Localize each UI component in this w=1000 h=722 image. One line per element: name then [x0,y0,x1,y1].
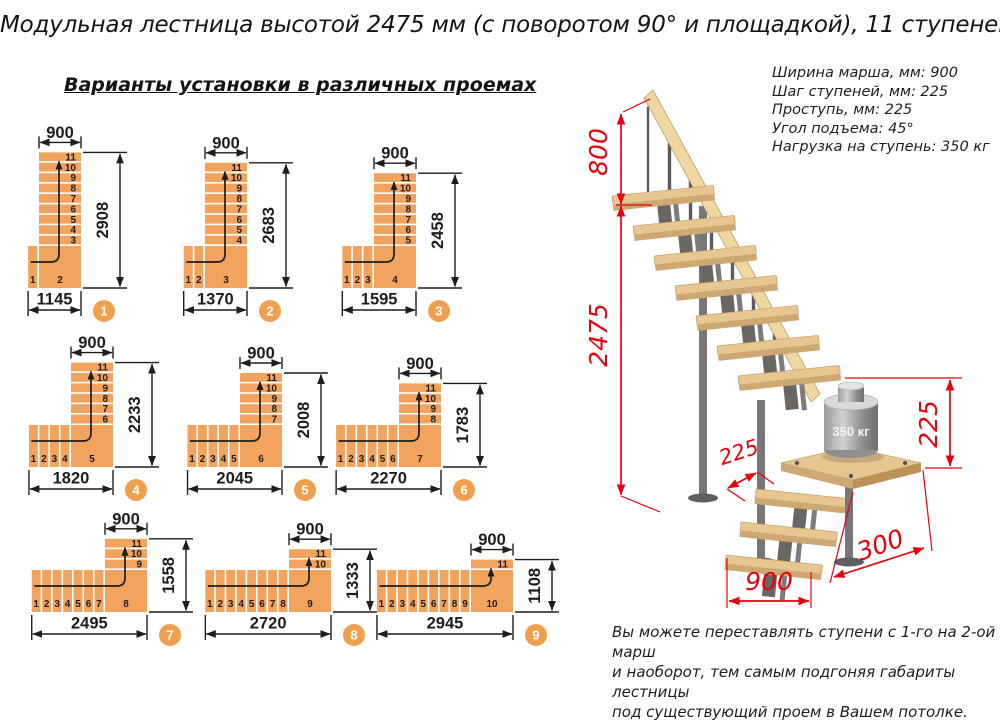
variant-badge-number: 9 [532,628,539,643]
bottom-step-number: 4 [369,454,375,465]
stair-diagram-2: 1110987654123900268313702 [184,134,293,322]
flight-step-number: 7 [236,204,242,215]
corner-step-number: 8 [123,599,129,610]
variant-badge-number: 2 [266,304,273,319]
stair-diagram-5: 1110987123456900200820455 [188,345,328,502]
flight-step-number: 11 [425,383,436,394]
plan-diagrams: 1110987654312900290811451111098765412390… [28,124,559,646]
bottom-step-number: 5 [231,454,237,465]
bottom-step-number: 5 [420,599,426,610]
bottom-step-number: 1 [185,275,191,286]
flight-step-number: 8 [430,415,436,426]
flight-step-number: 10 [400,184,412,195]
flight-step-number: 7 [271,415,277,426]
corner-step-number: 7 [417,454,423,465]
stair-diagram-1: 1110987654312900290811451 [28,124,127,322]
flight-step-number: 6 [70,204,76,215]
flight-step-number: 7 [70,194,76,205]
opening-width-label: 1145 [37,291,73,309]
bottom-step-number: 7 [270,599,276,610]
bottom-step-number: 3 [399,599,405,610]
bottom-step-number: 1 [31,454,37,465]
variant-badge-number: 1 [100,304,107,319]
bottom-step-number: 4 [410,599,416,610]
flight-width-label: 900 [112,510,140,528]
label-total-height: 2475 [584,303,613,367]
opening-width-label: 2720 [250,615,287,633]
flight-step-number: 6 [102,415,108,426]
bottom-step-number: 2 [217,599,223,610]
opening-width-label: 2045 [216,470,253,488]
stair-diagram-6: 1110981234567900178322706 [336,355,487,501]
corner-step-number: 9 [307,599,313,610]
flight-step-number: 11 [231,163,242,174]
bottom-step-number: 4 [221,454,227,465]
flight-step-number: 8 [271,404,277,415]
bottom-step-number: 1 [207,599,213,610]
bottom-step-number: 1 [379,599,385,610]
bottom-step-number: 1 [338,454,344,465]
corner-step-number: 4 [392,275,398,286]
flight-step-number: 11 [315,549,326,560]
flight-step-number: 9 [136,560,142,571]
bottom-step-number: 2 [41,454,47,465]
flight-step-number: 10 [97,373,109,384]
variant-badge-number: 4 [132,483,140,498]
flight-step-number: 8 [102,394,108,405]
bottom-step-number: 5 [75,599,81,610]
opening-width-label: 2270 [370,470,407,488]
flight-width-label: 900 [296,521,324,539]
opening-height-label: 2683 [260,207,278,244]
bottom-step-number: 6 [259,599,265,610]
variant-badge-number: 8 [350,628,357,643]
bottom-step-number: 1 [33,599,39,610]
corner-step-number: 5 [89,454,95,465]
label-march-width: 900 [745,567,793,596]
opening-width-label: 2495 [71,615,108,633]
bottom-step-number: 6 [390,454,396,465]
corner-step-number: 6 [258,454,264,465]
dim-225-rise [728,473,756,488]
opening-width-label: 1595 [361,291,398,309]
label-rail-height: 800 [584,128,613,176]
variant-badge-number: 7 [166,628,173,643]
flight-width-label: 900 [381,145,409,163]
bottom-step-number: 9 [462,599,468,610]
bottom-step-number: 4 [238,599,244,610]
bottom-step-number: 8 [452,599,458,610]
bottom-step-number: 3 [365,275,371,286]
opening-height-label: 2008 [295,402,313,439]
opening-height-label: 2458 [429,212,447,249]
stairs-scene: 1110987654312900290811451111098765412390… [0,0,1000,708]
flight-width-label: 900 [78,334,106,352]
flight-width-label: 900 [46,124,74,142]
flight-step-number: 4 [236,236,242,247]
stair-diagram-9: 1112345678910900110829459 [377,531,559,646]
flight-step-number: 5 [405,236,411,247]
tread-module [783,383,799,410]
flight-step-number: 8 [405,204,411,215]
flight-width-label: 900 [212,134,240,152]
staircase-3d-flight [612,90,852,604]
flight-step-number: 7 [405,215,411,226]
bottom-step-number: 4 [65,599,71,610]
opening-width-label: 1820 [53,470,90,488]
opening-height-label: 1558 [160,557,178,594]
flight-step-number: 11 [400,173,411,184]
variant-badge-number: 3 [435,304,442,319]
flight-step-number: 5 [236,225,242,236]
label-step-rise: 225 [716,435,762,470]
bottom-step-number: 2 [355,275,361,286]
flight-step-number: 10 [266,383,278,394]
variant-badge-number: 6 [460,483,467,498]
bottom-step-number: 2 [389,599,395,610]
flight-step-number: 11 [97,363,108,374]
opening-height-label: 1333 [344,562,362,599]
bottom-step-number: 3 [228,599,234,610]
bottom-step-number: 2 [200,454,206,465]
flight-width-label: 900 [478,531,506,549]
bottom-step-number: 1 [30,275,36,286]
bottom-step-number: 2 [348,454,354,465]
flight-step-number: 10 [131,549,143,560]
weight-label: 350 кг [832,424,870,439]
flight-step-number: 10 [425,394,437,405]
flight-step-number: 9 [430,404,436,415]
flight-step-number: 6 [405,225,411,236]
label-platform-overhang: 300 [853,523,908,566]
bottom-step-number: 3 [52,454,58,465]
flight-step-number: 9 [70,173,76,184]
stair-diagram-4: 1110987612345900223318204 [29,334,159,501]
bottom-step-number: 2 [196,275,202,286]
corner-step-number: 2 [57,275,63,286]
bottom-step-number: 5 [249,599,255,610]
flight-width-label: 900 [247,345,275,363]
weight-cylinder: 350 кг [822,382,884,463]
flight-step-number: 8 [70,184,76,195]
flight-step-number: 11 [131,539,142,550]
opening-width-label: 1370 [197,291,234,309]
variant-badge-number: 5 [301,483,308,498]
bottom-step-number: 1 [344,275,350,286]
flight-step-number: 11 [65,152,76,163]
bottom-step-number: 6 [431,599,437,610]
stair-diagram-3: 1110987651234900245815953 [342,145,462,322]
flight-step-number: 8 [236,194,242,205]
bottom-step-number: 1 [189,454,195,465]
flight-width-label: 900 [406,355,434,373]
bottom-step-number: 7 [96,599,102,610]
flight-step-number: 4 [70,225,76,236]
corner-step-number: 3 [223,275,229,286]
bottom-step-number: 3 [210,454,216,465]
bottom-step-number: 8 [280,599,286,610]
corner-step-number: 10 [486,599,498,610]
opening-height-label: 1783 [454,407,472,444]
flight-step-number: 6 [236,215,242,226]
flight-step-number: 7 [102,404,108,415]
stair-diagram-7: 1110912345678900155824957 [32,510,193,646]
bottom-step-number: 3 [359,454,365,465]
bottom-step-number: 2 [44,599,50,610]
flight-step-number: 5 [70,215,76,226]
pole-flange [688,494,718,503]
bottom-step-number: 5 [380,454,386,465]
opening-height-label: 2908 [94,202,112,239]
bottom-step-number: 6 [86,599,92,610]
stair-diagram-8: 1110123456789900133327208 [205,521,377,646]
label-platform-rise: 225 [914,400,943,448]
flight-step-number: 10 [315,560,327,571]
bottom-step-number: 3 [54,599,60,610]
flight-step-number: 9 [102,383,108,394]
opening-height-label: 1108 [526,568,544,604]
flight-step-number: 9 [405,194,411,205]
bottom-step-number: 7 [441,599,447,610]
opening-height-label: 2233 [126,396,144,433]
bottom-step-number: 4 [62,454,68,465]
flight-step-number: 9 [271,394,277,405]
flight-step-number: 11 [266,373,277,384]
opening-width-label: 2945 [427,615,464,633]
flight-step-number: 3 [70,236,76,247]
flight-step-number: 11 [497,560,508,571]
flight-step-number: 10 [231,173,243,184]
flight-step-number: 10 [65,163,77,174]
flight-step-number: 9 [236,184,242,195]
